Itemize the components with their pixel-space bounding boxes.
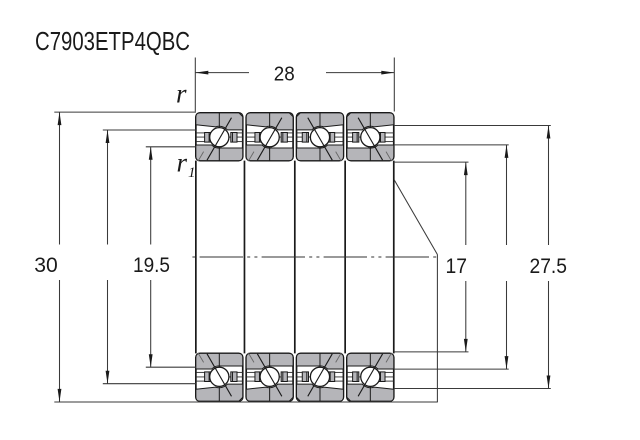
svg-text:r: r <box>177 148 188 178</box>
svg-text:19.5: 19.5 <box>133 254 170 277</box>
svg-text:1: 1 <box>188 165 196 181</box>
svg-text:r: r <box>176 79 187 109</box>
svg-text:30: 30 <box>34 254 58 277</box>
svg-text:C7903ETP4QBC: C7903ETP4QBC <box>35 26 190 56</box>
svg-text:28: 28 <box>274 62 295 85</box>
svg-text:27.5: 27.5 <box>530 255 568 278</box>
svg-text:17: 17 <box>446 255 468 278</box>
